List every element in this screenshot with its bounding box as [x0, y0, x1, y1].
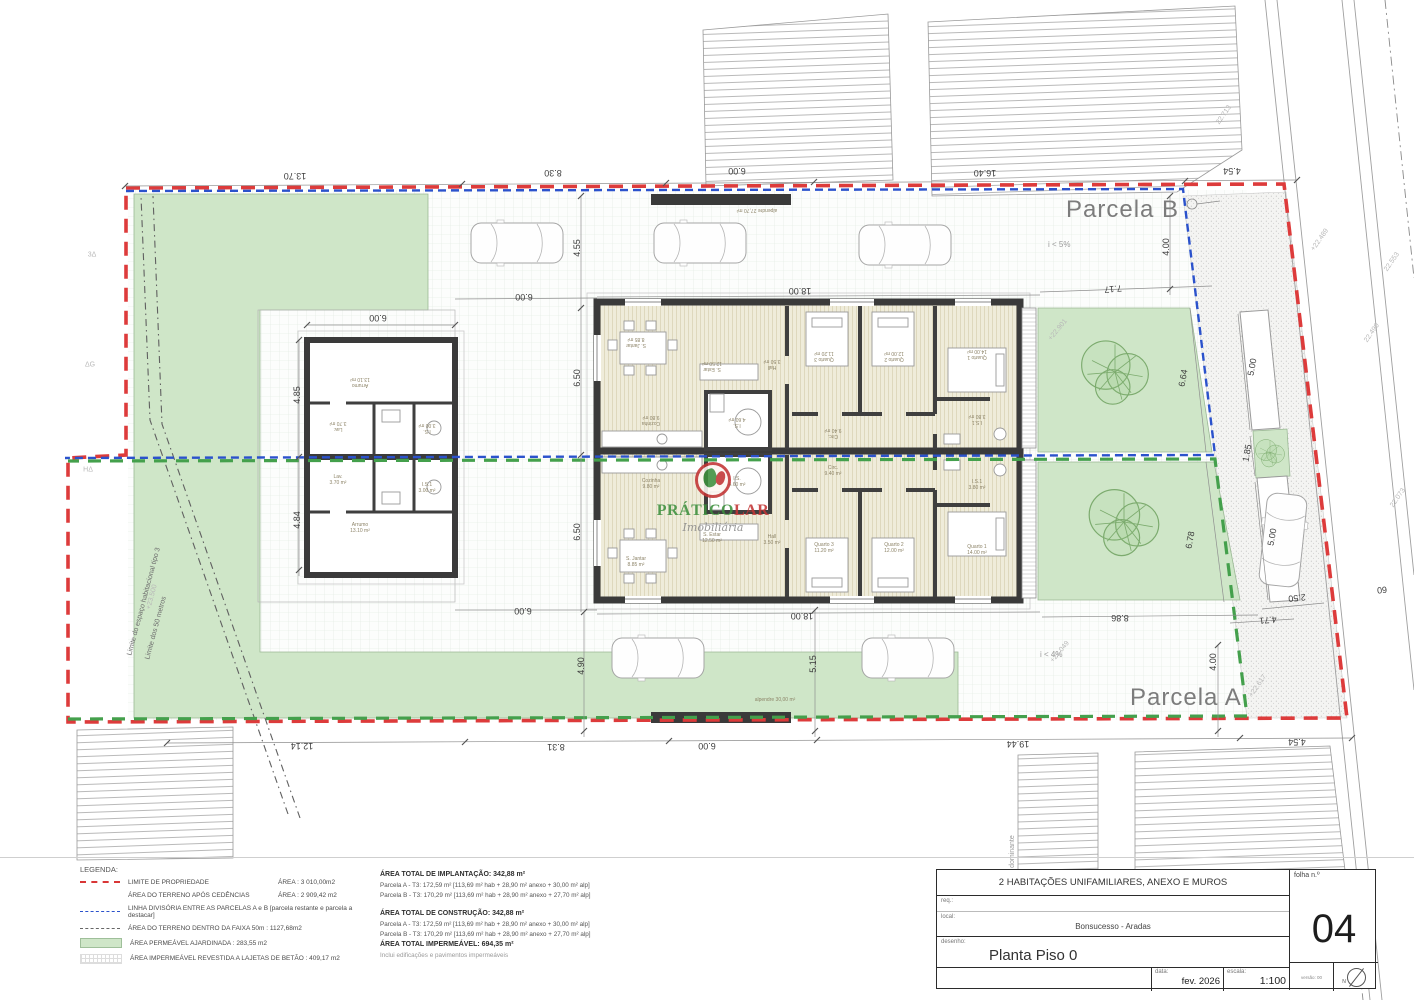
impermeavel-note: Inclui edificações e pavimentos impermeá… [380, 951, 650, 961]
legend-value: ÁREA : 2 909,42 m2 [278, 892, 337, 899]
dim-label: 6.00 [369, 313, 387, 323]
scale-value: 1:100 [1227, 975, 1286, 987]
legend-row: LINHA DIVISÓRIA ENTRE AS PARCELAS A e B … [80, 905, 380, 919]
dim-label: 16.40 [974, 168, 997, 178]
legend-label: ÁREA PERMEÁVEL AJARDINADA : 283,55 m2 [130, 940, 267, 947]
room-label: Lav. 3.70 m² [330, 420, 347, 432]
legend-row: ÁREA PERMEÁVEL AJARDINADA : 283,55 m2 [80, 938, 380, 948]
desenho-label: desenho: [941, 939, 966, 945]
sheet-number-column: folha n.º 04 versão: 00 N [1289, 870, 1377, 990]
empty-swatch [80, 892, 120, 900]
dim-label: 6.00 [728, 166, 746, 176]
parcela-a-label: Parcela A [1130, 684, 1242, 712]
dim-label: 18.00 [789, 286, 812, 296]
room-label: I.S. 4.60 m² [729, 416, 746, 428]
north-arrow-icon [1347, 968, 1366, 987]
dim-label: 4.90 [576, 657, 586, 675]
room-label: Hall 3.50 m² [764, 534, 781, 546]
dim-label: 5.15 [808, 655, 818, 673]
elev-label: +22.901 [1047, 318, 1069, 342]
red-dash-swatch-icon [80, 878, 120, 886]
black-dash-swatch-icon [80, 925, 120, 933]
dim-label: 4.00 [1161, 238, 1171, 256]
pratico-lar-brand: PRÁTICOLAR [638, 502, 788, 520]
pratico-lar-watermark: PRÁTICOLAR Imobiliária [638, 462, 788, 534]
brand-green: PRÁTICO [657, 502, 734, 519]
dim-label: 5.00 [1246, 357, 1259, 376]
room-label: Quarto 3 11.20 m² [814, 350, 833, 362]
dim-label: 7.17 [1104, 283, 1122, 294]
legend-row: ÁREA IMPERMEÁVEL REVESTIDA A LAJETAS DE … [80, 954, 380, 964]
room-label: Circ. 9.40 m² [825, 427, 842, 439]
room-label: Quarto 2 12.00 m² [884, 350, 904, 362]
dim-label: 4.71 [1259, 614, 1277, 626]
version-cell: versão: 00 [1290, 963, 1334, 991]
dim-label: 4.00 [1208, 653, 1218, 671]
dim-label: 4.54 [1223, 166, 1241, 176]
dim-label: 6.50 [572, 523, 582, 541]
implantacao-title: ÁREA TOTAL DE IMPLANTAÇÃO: 342,88 m² [380, 870, 650, 881]
room-label: I.S. 3.00 m² [419, 422, 436, 434]
dim-label: 5.00 [1266, 527, 1279, 546]
dim-label: 6.78 [1184, 530, 1197, 549]
date-cell: data: fev. 2026 [1151, 968, 1223, 991]
room-label: Cozinha 9.80 m² [642, 414, 660, 426]
elev-label: 3Δ [88, 252, 97, 259]
room-label: Quarto 1 14.00 m² [967, 348, 987, 360]
scale-label: escala: [1227, 969, 1246, 975]
titleblock-bottom-row: data: fev. 2026 escala: 1:100 [937, 967, 1289, 990]
dim-label: 4.85 [292, 386, 302, 404]
drawing-name: Planta Piso 0 [989, 947, 1285, 964]
construcao-title: ÁREA TOTAL DE CONSTRUÇÃO: 342,88 m² [380, 909, 650, 920]
room-label: Hall 3.50 m² [764, 358, 781, 370]
dim-label: 4.55 [572, 239, 582, 257]
legend-row: ÁREA DO TERRENO APÓS CEDÊNCIAS ÁREA : 2 … [80, 892, 380, 900]
dim-label: 8.30 [544, 168, 562, 178]
room-label: Circ. 9.40 m² [825, 465, 842, 477]
room-label: S. Estar 12.50 m² [702, 360, 722, 372]
slope-label-b: i < 5% [1048, 240, 1070, 249]
dim-label: 6.64 [1177, 368, 1190, 387]
hatch-swatch-icon [80, 954, 122, 964]
strip-separator [0, 857, 1414, 858]
legend-row: ÁREA DO TERRENO DENTRO DA FAIXA 50m : 11… [80, 925, 380, 933]
dim-label: 6.00 [514, 606, 532, 616]
elev-label: ΔG [85, 362, 95, 369]
brand-red: LAR [734, 502, 769, 519]
room-label: Quarto 3 11.20 m² [814, 542, 833, 554]
legend-label: ÁREA DO TERRENO DENTRO DA FAIXA 50m : 11… [128, 925, 302, 932]
room-label: I.S.1 3.80 m² [969, 479, 986, 491]
dim-label: 18.00 [791, 611, 814, 621]
dim-label: 13.70 [284, 171, 307, 181]
req-label: req.: [941, 898, 953, 904]
sheet-number-label: folha n.º [1290, 870, 1378, 896]
scale-cell: escala: 1:100 [1223, 968, 1289, 991]
dim-label: 8.31 [547, 742, 565, 752]
local-value: Bonsucesso - Aradas [941, 922, 1285, 931]
pratico-lar-subtitle: Imobiliária [638, 521, 788, 534]
legend-row: LIMITE DE PROPRIEDADE ÁREA : 3 010,00m2 [80, 878, 380, 886]
green-fill-swatch-icon [80, 938, 122, 948]
blue-dash-swatch-icon [80, 908, 120, 916]
elev-label: +22.489 [1310, 228, 1330, 253]
legend: LEGENDA: LIMITE DE PROPRIEDADE ÁREA : 3 … [80, 865, 380, 969]
room-label: alpendre 30,00 m² [755, 697, 796, 703]
parcela-b-label: Parcela B [1066, 196, 1179, 224]
impermeavel-title: ÁREA TOTAL IMPERMEÁVEL: 694,35 m² [380, 940, 650, 951]
drawing-sheet: Parcela B Parcela A i < 5% i < 4% Limite… [0, 0, 1414, 1000]
legend-title: LEGENDA: [80, 865, 380, 874]
legend-label: ÁREA DO TERRENO APÓS CEDÊNCIAS [128, 892, 278, 899]
dim-label: 19.44 [1007, 739, 1030, 749]
elev-label: 22.073 [1389, 487, 1407, 509]
desenho-cell: desenho: Planta Piso 0 [937, 936, 1289, 967]
room-label: Arrumo 13.10 m² [350, 376, 370, 388]
dim-label: 6.00 [515, 292, 533, 302]
construcao-parcela-b: Parcela B - T3: 170,29 m² [113,69 m² hab… [380, 930, 650, 940]
dim-label: 4.84 [292, 511, 302, 529]
room-label: alpendre 27,70 m² [737, 207, 778, 213]
room-label: S. Jantar 8.85 m² [626, 556, 646, 568]
legend-value: ÁREA : 3 010,00m2 [278, 879, 335, 886]
dim-label: 4.54 [1288, 737, 1306, 747]
pratico-lar-emblem-icon [695, 462, 731, 498]
implantacao-parcela-b: Parcela B - T3: 170,29 m² [113,69 m² hab… [380, 891, 650, 901]
room-label: Quarto 2 12.00 m² [884, 542, 904, 554]
dim-label: 2.50 [1288, 592, 1306, 604]
elev-label: 22.713 [1215, 104, 1233, 126]
legend-label: LIMITE DE PROPRIEDADE [128, 879, 278, 886]
dim-label: 6.00 [698, 741, 716, 751]
north-arrow-cell: N [1334, 963, 1378, 991]
room-label: Lav. 3.70 m² [330, 474, 347, 486]
dim-label: 8.86 [1111, 613, 1129, 623]
titleblock-footer: versão: 00 N [1290, 962, 1378, 991]
room-label: I.S.1 3.80 m² [969, 413, 986, 425]
date-label: data: [1155, 969, 1168, 975]
dim-label: 6.50 [572, 369, 582, 387]
areas-summary: ÁREA TOTAL DE IMPLANTAÇÃO: 342,88 m² Par… [380, 870, 650, 960]
dim-label: 1.85 [1241, 443, 1254, 462]
sheet-number: 04 [1290, 896, 1378, 962]
title-block: 2 HABITAÇÕES UNIFAMILIARES, ANEXO E MURO… [936, 869, 1376, 989]
legend-label: ÁREA IMPERMEÁVEL REVESTIDA A LAJETAS DE … [130, 955, 340, 962]
implantacao-parcela-a: Parcela A - T3: 172,59 m² [113,69 m² hab… [380, 881, 650, 891]
construcao-parcela-a: Parcela A - T3: 172,59 m² [113,69 m² hab… [380, 920, 650, 930]
project-title: 2 HABITAÇÕES UNIFAMILIARES, ANEXO E MURO… [937, 870, 1289, 896]
date-value: fev. 2026 [1155, 976, 1220, 987]
elev-label: HΔ [83, 467, 93, 474]
room-label: Quarto 1 14.00 m² [967, 544, 987, 556]
elev-label: +22.617 [1248, 674, 1268, 699]
legend-label: LINHA DIVISÓRIA ENTRE AS PARCELAS A e B … [128, 905, 380, 919]
local-cell: local: Bonsucesso - Aradas [937, 911, 1289, 936]
dim-label: 60 [1376, 585, 1387, 596]
room-label: Arrumo 13.10 m² [350, 522, 370, 534]
local-label: local: [941, 914, 955, 920]
dim-label: 12.14 [291, 741, 314, 751]
elev-label: 22.490 [1363, 322, 1381, 344]
req-cell: req.: [937, 896, 1289, 911]
north-letter: N [1342, 979, 1346, 985]
room-label: I.S.1 3.00 m² [419, 482, 436, 494]
elev-label: 22.553 [1383, 251, 1401, 273]
room-label: S. Jantar 8.85 m² [626, 336, 646, 348]
